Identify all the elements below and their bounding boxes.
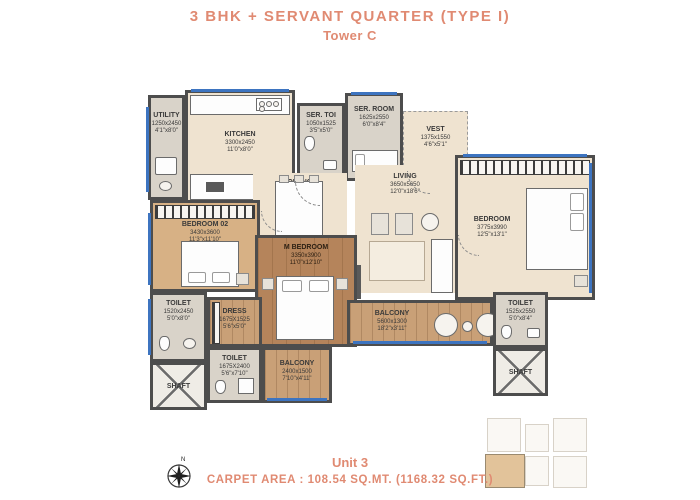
wc-icon [304, 136, 315, 151]
carpet-area-label: CARPET AREA : 108.54 SQ.MT. (1168.32 SQ.… [0, 474, 700, 486]
room-balcony-bottom: BALCONY 2400x1500 7'10"x4'11" [262, 347, 332, 403]
nightstand-icon [262, 278, 274, 290]
room-bedroom: BEDROOM 3775x3990 12'5"x13'1" [455, 155, 595, 300]
window [148, 299, 151, 355]
nightstand-icon [236, 273, 249, 285]
double-bed-icon [526, 188, 588, 270]
room-toilet-left: TOILET 1520x2450 5'0"x8'0" [150, 292, 207, 362]
patio-table-icon [462, 321, 473, 332]
armchair-icon [421, 213, 439, 231]
room-servant-toilet: SER. TOI 1050x1525 3'5"x5'0" [297, 103, 345, 181]
room-living: LIVING 3650x5650 12'0"x18'6" [355, 165, 455, 293]
sofa-icon [431, 239, 453, 293]
nightstand-icon [336, 278, 348, 290]
room-bedroom02: BEDROOM 02 3430x3600 11'3"x11'10" [150, 200, 260, 292]
basin-icon [323, 160, 337, 170]
wardrobe-icon [212, 302, 220, 344]
window [463, 154, 587, 157]
shower-tray-icon [238, 378, 254, 394]
nightstand-icon [574, 275, 588, 287]
hob-icon [256, 98, 282, 111]
kitchen-sink-icon [204, 180, 226, 194]
room-toilet-right: TOILET 1525x2550 5'0"x8'4" [493, 292, 548, 348]
window [353, 341, 487, 344]
basin-icon [527, 328, 540, 338]
room-dress: DRESS 1675X1525 5'6"x5'0" [207, 297, 262, 347]
wc-icon [159, 336, 170, 351]
double-bed-icon [181, 241, 239, 287]
chair-icon [279, 175, 289, 183]
window [267, 398, 327, 401]
wc-icon [215, 380, 226, 394]
room-shaft-right: SHAFT [493, 348, 548, 396]
room-utility: UTILITY 1250x2450 4'1"x8'0" [148, 95, 185, 200]
window [148, 213, 151, 285]
wardrobe-icon [155, 205, 255, 219]
sofa-icon [371, 213, 389, 235]
floor-plan: UTILITY 1250x2450 4'1"x8'0" KITCHEN 3300… [145, 85, 597, 433]
room-shaft-left: SHAFT [150, 362, 207, 410]
page-title: 3 BHK + SERVANT QUARTER (TYPE I) [0, 8, 700, 25]
wc-icon [501, 325, 512, 339]
basin-icon [183, 338, 196, 349]
sofa-icon [395, 213, 413, 235]
rug [369, 241, 425, 281]
room-balcony-right: BALCONY 5600x1300 18'2"x3'11" [347, 300, 493, 346]
window [146, 107, 149, 192]
sink-icon [159, 181, 172, 191]
room-toilet-mid: TOILET 1675X2400 5'6"x7'10" [207, 347, 262, 403]
tower-label: Tower C [0, 28, 700, 43]
patio-chair-icon [434, 313, 458, 337]
wardrobe-icon [460, 160, 590, 175]
room-master-bedroom: M BEDROOM 3350x3900 11'0"x12'10" [255, 235, 357, 347]
window [351, 92, 397, 95]
double-bed-icon [276, 276, 334, 340]
window [589, 163, 592, 293]
window [191, 89, 289, 92]
washer-icon [155, 157, 177, 175]
unit-label: Unit 3 [0, 455, 700, 470]
